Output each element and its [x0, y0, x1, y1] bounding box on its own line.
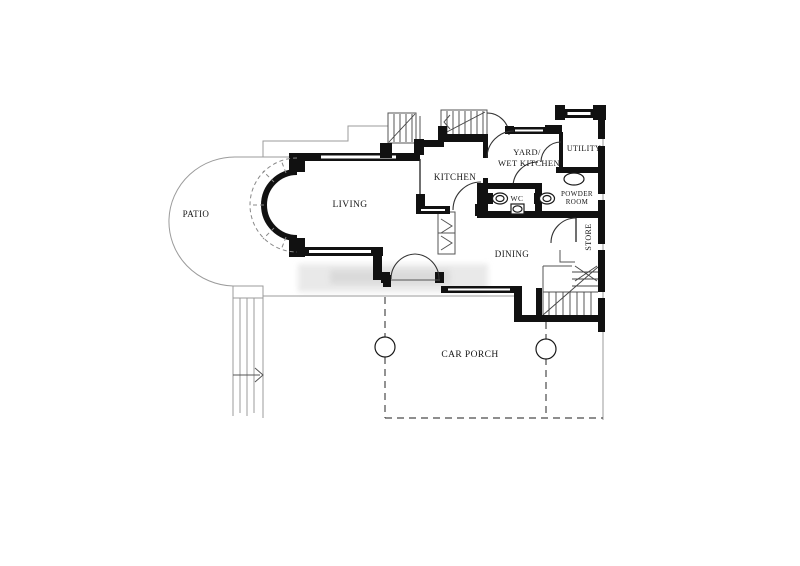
casement-swing-line	[281, 160, 286, 173]
stair-left-wall	[536, 288, 542, 318]
bay-window-wall	[264, 172, 297, 238]
kitchen-label: KITCHEN	[434, 172, 476, 182]
wall-segment	[598, 200, 605, 244]
wall-segment	[598, 250, 605, 292]
stair-wall-block	[380, 143, 392, 158]
porch-top-window	[448, 289, 510, 291]
bay-window	[250, 153, 305, 257]
yard-top-window	[515, 130, 543, 132]
bay-corner-block	[289, 153, 305, 172]
wall-segment	[598, 107, 605, 139]
walkway-landing	[233, 286, 263, 298]
wc: WC	[477, 183, 544, 218]
step-arrow-icon	[441, 219, 452, 233]
powder-top-wall	[556, 167, 605, 173]
roof-overhang-line	[263, 126, 388, 157]
bay-corner-block	[289, 238, 305, 257]
stair-diagonal	[543, 267, 598, 315]
floor-plan-page: PATIO LIVING	[0, 0, 800, 566]
wall-segment	[598, 298, 605, 332]
basin-bowl-icon	[513, 206, 522, 212]
store: STORE	[551, 218, 593, 262]
floor-plan-drawing: PATIO LIVING	[0, 0, 800, 566]
level-steps	[438, 212, 455, 254]
utility-corner-block	[555, 105, 565, 120]
utility-left-wall	[559, 132, 563, 168]
door-arc	[551, 218, 576, 243]
stair-wall-block	[438, 126, 447, 142]
staircase-top	[438, 110, 509, 142]
patio: PATIO	[169, 157, 291, 286]
kitchen-bottom-window	[421, 209, 445, 211]
dining-label: DINING	[495, 249, 529, 259]
utility-label: UTILITY	[567, 144, 601, 153]
living-room: LIVING	[303, 153, 444, 283]
living-corner-wall	[373, 252, 382, 280]
wc-label: WC	[511, 194, 524, 203]
column-icon	[536, 339, 556, 359]
yard-label-line2: WET KITCHEN	[498, 158, 560, 168]
casement-swing-line	[263, 171, 274, 182]
patio-label: PATIO	[183, 209, 210, 219]
column-icon	[375, 337, 395, 357]
kitchen: KITCHEN	[414, 139, 487, 216]
powder-label-line2: ROOM	[566, 198, 589, 206]
yard-label-line1: YARD/	[513, 147, 541, 157]
utility-top-window	[568, 112, 591, 115]
store-label: STORE	[584, 223, 593, 250]
staircase-main	[536, 266, 598, 318]
patio-outline	[169, 157, 291, 286]
boundary-right-wall	[598, 107, 605, 332]
toilet-bowl-icon	[496, 196, 504, 202]
powder-label-line1: POWDER	[561, 190, 593, 198]
toilet-bowl-icon	[543, 196, 551, 202]
living-bottom-window	[309, 250, 371, 253]
wall-segment	[598, 146, 605, 194]
basin-icon	[564, 173, 584, 185]
porch-wall-block	[383, 275, 391, 287]
walkway	[233, 286, 263, 418]
car-porch-label: CAR PORCH	[441, 350, 498, 360]
casement-swing-line	[263, 228, 274, 239]
kitchen-top-wall	[414, 140, 444, 147]
store-corner-wall	[560, 250, 575, 262]
stair-diagonal	[389, 114, 415, 142]
step-arrow-icon	[441, 236, 452, 250]
dining: DINING	[495, 249, 529, 259]
stair-bottom-wall	[441, 134, 487, 142]
wc-left-wall	[477, 183, 484, 218]
powder-room: POWDER ROOM	[534, 167, 605, 218]
casement-swing-line	[281, 237, 286, 250]
door-arc	[487, 131, 514, 158]
powder-bottom-wall	[541, 211, 605, 218]
wc-top-wall	[479, 183, 541, 189]
porch-bottom-wall	[520, 315, 605, 322]
living-label: LIVING	[332, 200, 367, 210]
